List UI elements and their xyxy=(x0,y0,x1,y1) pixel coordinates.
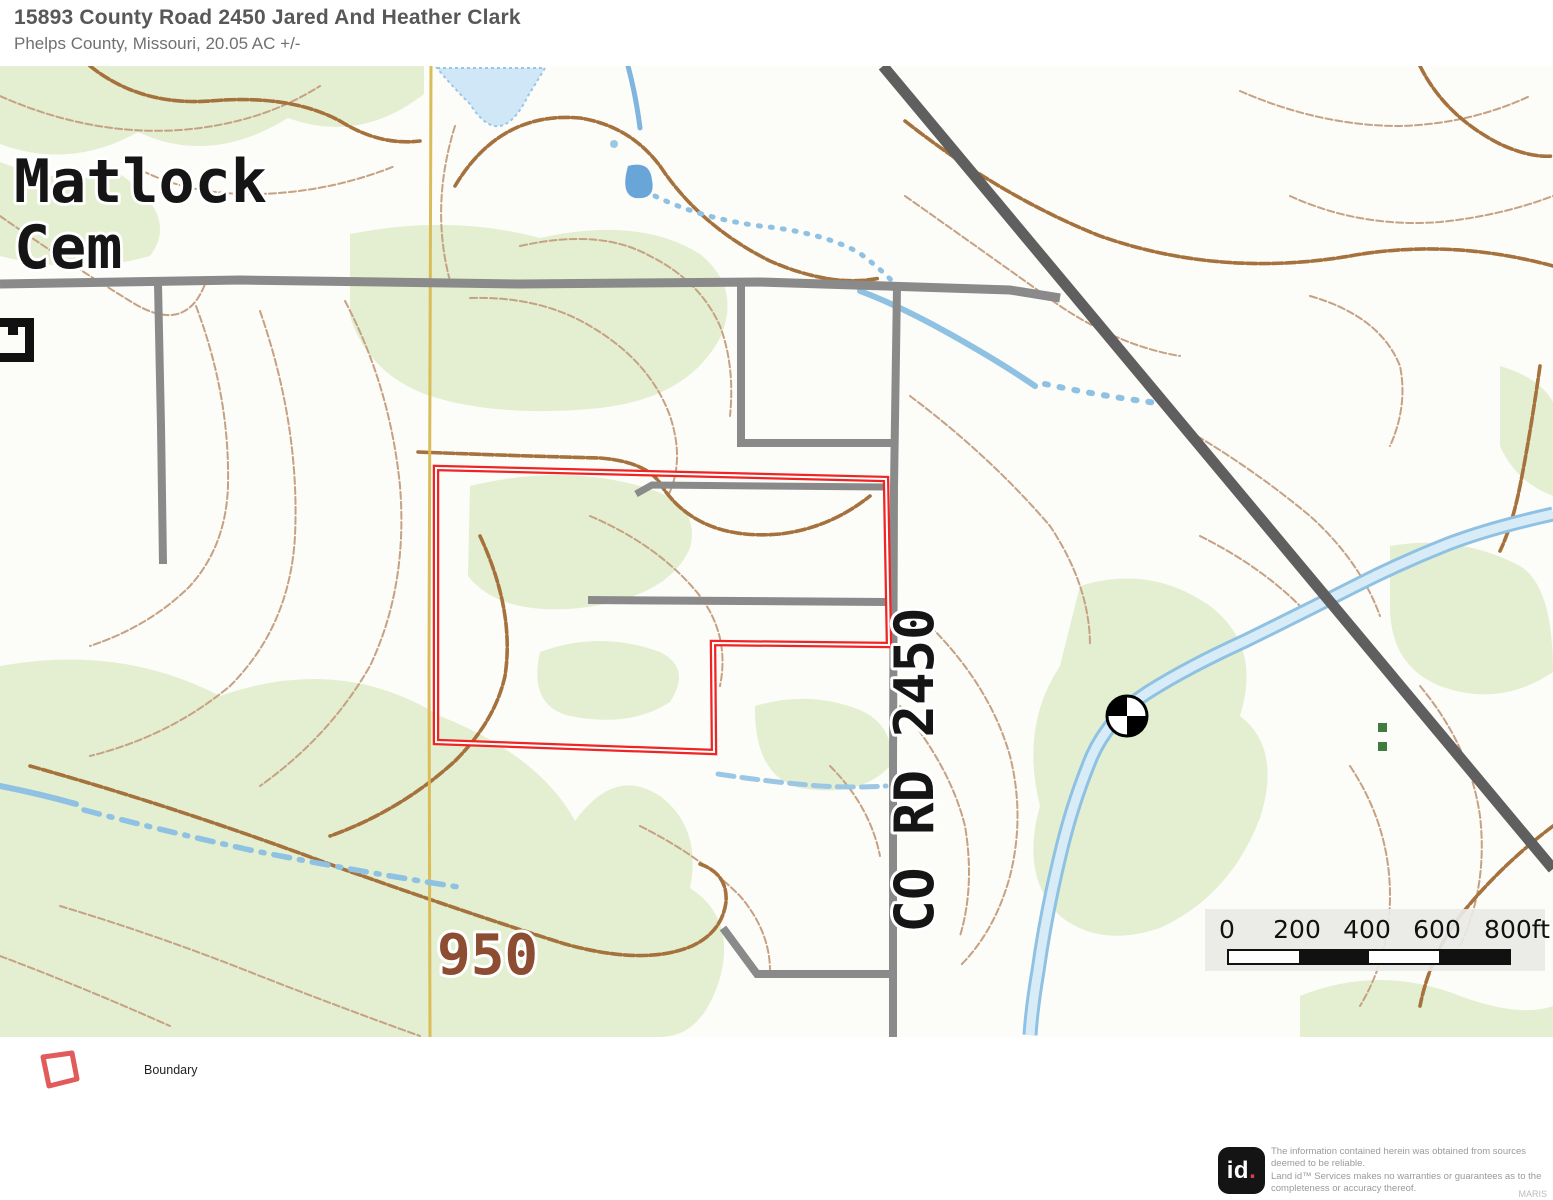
scale-tick-label: 600 xyxy=(1413,915,1461,944)
cemetery-label-line2: Cem xyxy=(14,213,122,283)
scale-tick-label: 200 xyxy=(1273,915,1321,944)
scale-segment xyxy=(1369,951,1439,963)
contour-elevation-label: 950 xyxy=(437,923,538,988)
map-legend: Boundary xyxy=(34,1048,198,1092)
section-line xyxy=(429,66,431,1037)
scale-bar: 0 200 400 600 800ft xyxy=(1205,909,1545,971)
logo-dot: . xyxy=(1249,1157,1256,1185)
disclaimer-line: completeness or accuracy thereof. xyxy=(1271,1183,1543,1195)
report-header: 15893 County Road 2450 Jared And Heather… xyxy=(0,0,1553,66)
scale-bar-segments xyxy=(1227,949,1511,965)
mine-symbol xyxy=(1107,696,1147,736)
boundary-legend-label: Boundary xyxy=(144,1063,198,1077)
scale-tick-label: 400 xyxy=(1343,915,1391,944)
topo-map[interactable]: Matlock Cem CO RD 2450 950 0 200 400 600… xyxy=(0,66,1553,1037)
disclaimer-line: Land id™ Services makes no warranties or… xyxy=(1271,1171,1543,1183)
scale-tick-label: 0 xyxy=(1219,915,1235,944)
topo-map-canvas: Matlock Cem CO RD 2450 950 xyxy=(0,66,1553,1037)
logo-text: id xyxy=(1227,1157,1249,1185)
page-title: 15893 County Road 2450 Jared And Heather… xyxy=(14,6,521,30)
land-id-logo: id. xyxy=(1218,1147,1265,1194)
scale-segment xyxy=(1229,951,1299,963)
cemetery-label-line1: Matlock xyxy=(14,147,267,217)
disclaimer-line: deemed to be reliable. xyxy=(1271,1158,1543,1170)
scale-segment xyxy=(1439,951,1509,963)
page-subtitle: Phelps County, Missouri, 20.05 AC +/- xyxy=(14,34,300,54)
boundary-legend-icon xyxy=(34,1049,82,1091)
disclaimer-line: The information contained herein was obt… xyxy=(1271,1146,1543,1158)
disclaimer-text: The information contained herein was obt… xyxy=(1271,1146,1543,1195)
scale-segment xyxy=(1299,951,1369,963)
driveway-middle xyxy=(588,600,886,602)
maris-attribution: MARIS xyxy=(1518,1189,1547,1199)
scale-tick-label: 800ft xyxy=(1484,915,1550,944)
road-left-branch xyxy=(158,284,163,564)
road-label: CO RD 2450 xyxy=(883,607,946,932)
